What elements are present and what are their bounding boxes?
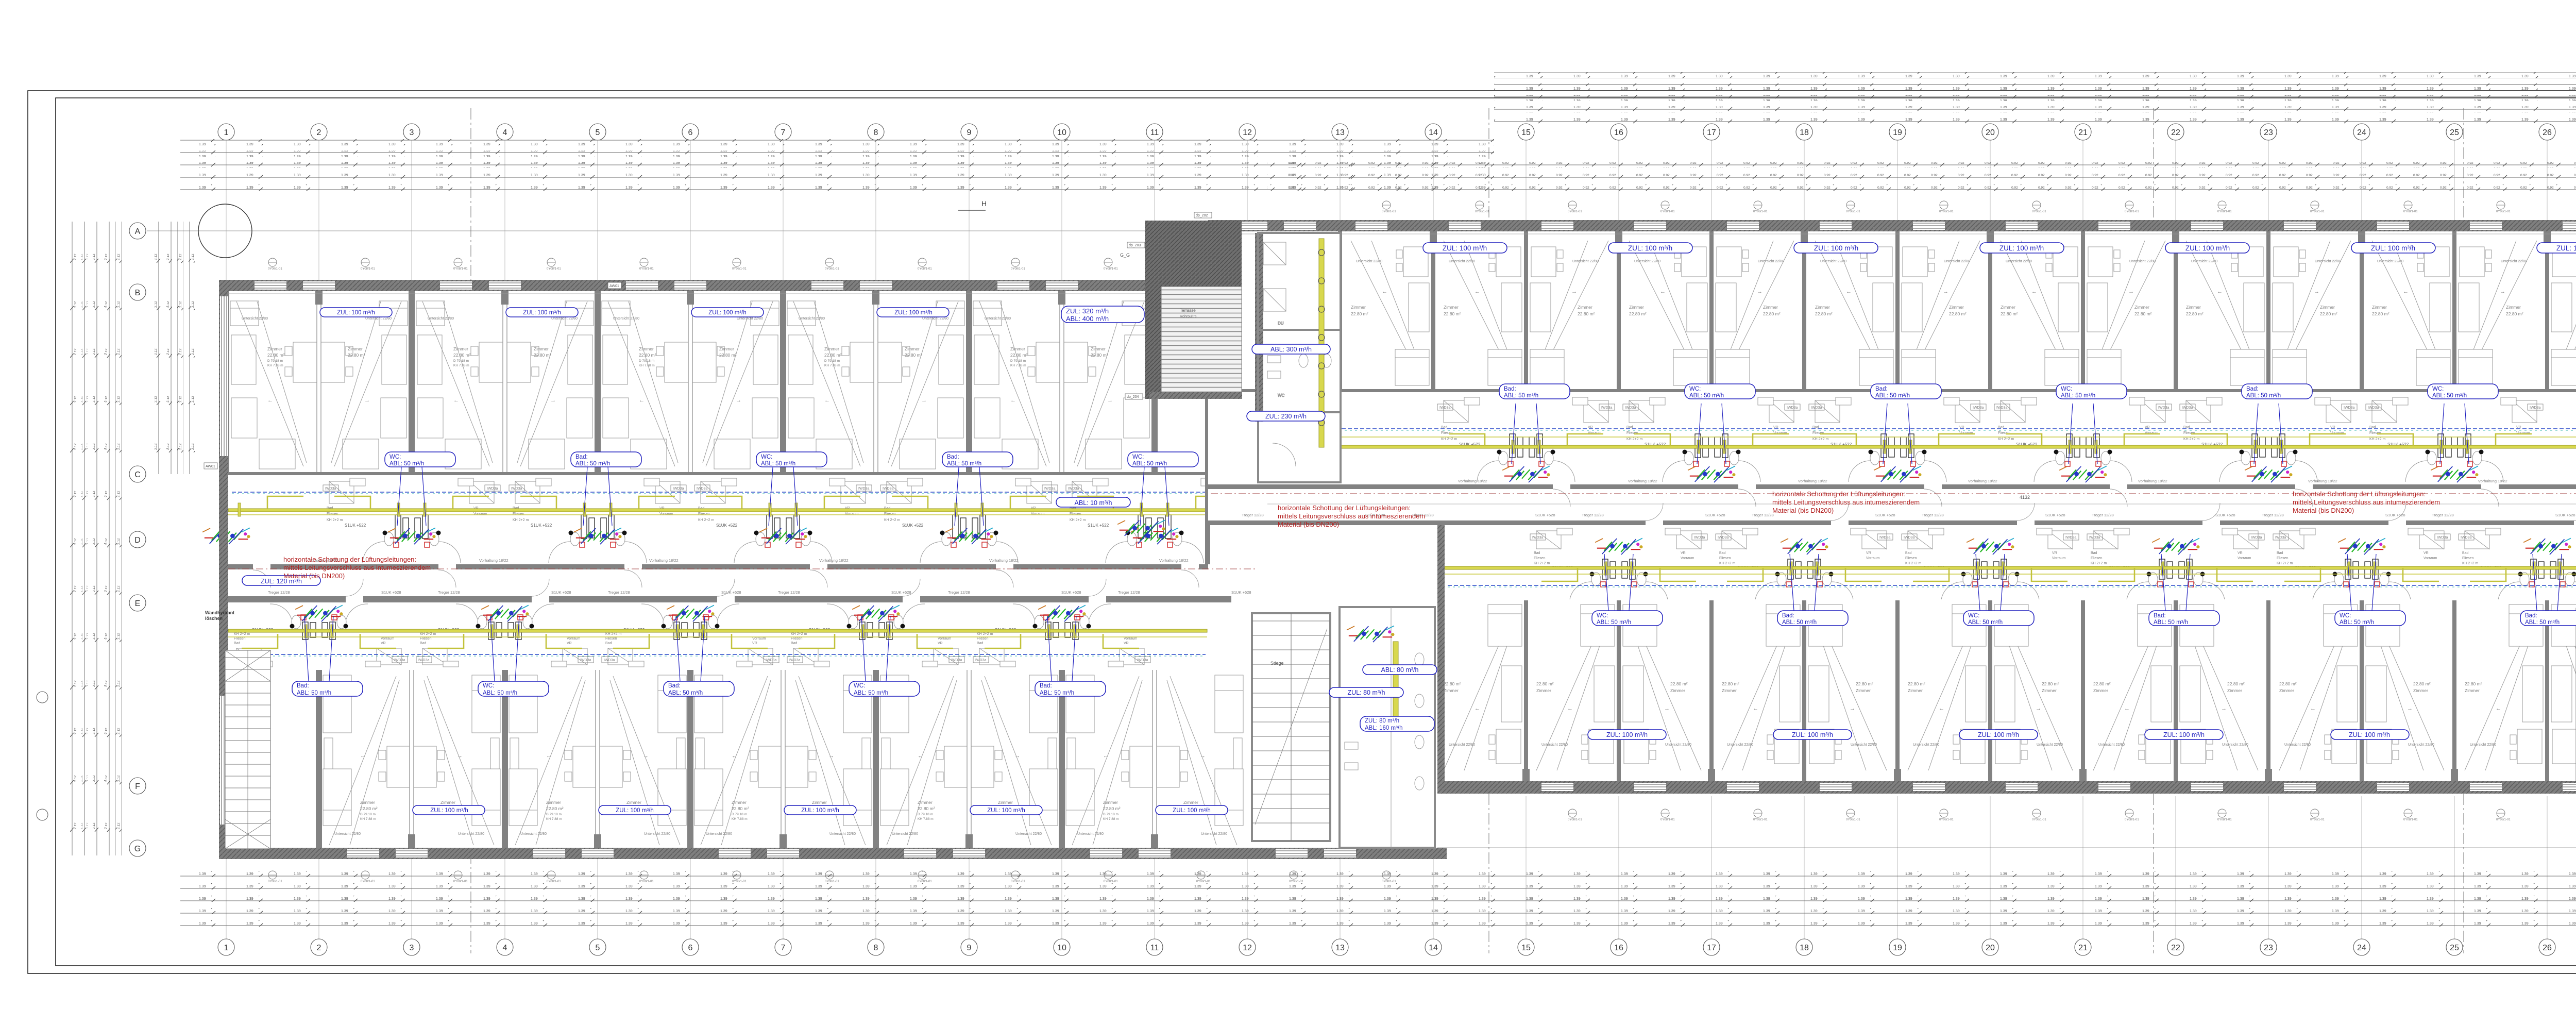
svg-text:Zimmer: Zimmer [440,800,455,805]
svg-text:VR: VR [1681,551,1686,555]
svg-text:Untersicht 22/80: Untersicht 22/80 [1665,743,1691,747]
svg-text:18: 18 [1800,128,1809,137]
svg-text:Untersicht 22/80: Untersicht 22/80 [1077,832,1104,836]
svg-text:S1UK +522: S1UK +522 [716,523,738,528]
svg-text:S1UK +528: S1UK +528 [2045,513,2065,517]
svg-text:KH 2+2 m: KH 2+2 m [1441,438,1457,441]
svg-text:Untersicht 22/80: Untersicht 22/80 [1356,260,1382,263]
svg-text:IWD3a: IWD3a [1601,406,1613,410]
svg-text:22.80 m²: 22.80 m² [719,352,737,358]
svg-text:Bad: Bad [791,642,798,645]
svg-text:VR: VR [2424,551,2429,555]
svg-text:ABL: 50 m³/h: ABL: 50 m³/h [1782,619,1817,626]
svg-text:→: → [1943,289,1948,295]
svg-text:24: 24 [2357,944,2366,952]
svg-text:ABL: 50 m³/h: ABL: 50 m³/h [483,690,517,696]
svg-text:KH 7.88 m: KH 7.88 m [732,817,748,821]
svg-text:Fliesen: Fliesen [2462,557,2474,560]
svg-text:Zimmer: Zimmer [2001,305,2015,310]
svg-text:Untersicht 22/80: Untersicht 22/80 [892,832,918,836]
svg-text:Fliesen: Fliesen [605,637,617,641]
svg-text:WC:: WC: [2061,386,2072,392]
svg-text:22.80 m²: 22.80 m² [1763,311,1781,316]
svg-text:ZUL: 100 m³/h: ZUL: 100 m³/h [616,808,654,814]
svg-text:22.80 m²: 22.80 m² [1949,311,1967,316]
svg-text:6: 6 [688,128,693,137]
svg-text:ZUL: 100 m³/h: ZUL: 100 m³/h [1792,731,1833,738]
svg-text:IWD3a: IWD3a [580,659,591,662]
svg-text:1: 1 [224,944,229,952]
svg-text:Bad: Bad [2462,551,2469,555]
svg-text:IWD3a: IWD3a [1625,406,1636,410]
svg-text:S1UK +522: S1UK +522 [345,523,366,528]
svg-text:S1UK +528: S1UK +528 [721,590,741,595]
svg-text:S1UK +528: S1UK +528 [381,590,401,595]
svg-text:Untersicht 22/80: Untersicht 22/80 [458,832,484,836]
svg-text:4: 4 [503,128,507,137]
svg-text:KH 2+2 m: KH 2+2 m [2369,438,2385,441]
svg-text:Zimmer: Zimmer [626,800,641,805]
svg-text:E: E [135,599,141,608]
svg-text:D 79.18 m: D 79.18 m [824,359,840,363]
svg-text:Untersicht 22/80: Untersicht 22/80 [1449,743,1475,747]
svg-text:Fliesen: Fliesen [791,637,803,641]
svg-text:ABL: 80 m³/h: ABL: 80 m³/h [1381,666,1419,674]
svg-text:←: ← [1846,289,1852,295]
svg-text:S1UK +522: S1UK +522 [902,523,924,528]
svg-text:Vorhaltung 18/22: Vorhaltung 18/22 [2138,479,2167,483]
svg-text:←: ← [360,753,366,759]
svg-text:Untersicht 22/80: Untersicht 22/80 [1913,743,1939,747]
svg-text:Treger 12/28: Treger 12/28 [1922,513,1944,517]
svg-text:Treger 12/28: Treger 12/28 [1242,513,1264,517]
svg-text:Treger 12/28: Treger 12/28 [2092,513,2114,517]
svg-text:Bad: Bad [234,642,241,645]
svg-text:23: 23 [2264,128,2273,137]
svg-text:Zimmer: Zimmer [1183,800,1198,805]
svg-text:→: → [921,397,927,404]
svg-text:KH 7.88 m: KH 7.88 m [1010,364,1026,367]
svg-text:→: → [1107,397,1113,404]
svg-text:5: 5 [596,128,600,137]
svg-text:22.80 m²: 22.80 m² [1722,681,1739,686]
svg-text:dp_202: dp_202 [1196,214,1208,217]
svg-text:22.80 m²: 22.80 m² [2001,311,2018,316]
svg-text:IWD3a: IWD3a [2065,536,2077,540]
svg-text:ZUL: 100 m³/h: ZUL: 100 m³/h [1173,808,1211,814]
svg-text:→: → [1664,705,1670,712]
svg-text:horizontale Schottung der Lüft: horizontale Schottung der Lüftungsleitun… [1278,504,1411,512]
svg-text:22.80 m²: 22.80 m² [2506,311,2523,316]
svg-text:9: 9 [967,944,972,952]
svg-text:Zimmer: Zimmer [2279,688,2294,693]
svg-text:D 79.18 m: D 79.18 m [918,813,933,816]
svg-text:IWD3a: IWD3a [2182,406,2193,410]
svg-text:Zimmer: Zimmer [534,346,549,351]
svg-text:D: D [134,536,141,545]
svg-text:Untersicht 22/80: Untersicht 22/80 [613,317,639,321]
svg-text:Untersicht 22/80: Untersicht 22/80 [1944,260,1970,263]
svg-text:Zimmer: Zimmer [2227,688,2242,693]
svg-text:KH 2+2 m: KH 2+2 m [977,632,993,636]
svg-text:Untersicht 22/80: Untersicht 22/80 [922,317,948,321]
svg-text:KH 2+2 m: KH 2+2 m [1812,438,1828,441]
svg-text:C: C [134,471,141,479]
svg-text:22.80 m²: 22.80 m² [2227,681,2245,686]
svg-text:H: H [981,199,987,208]
svg-text:Zimmer: Zimmer [360,800,375,805]
svg-text:horizontale Schottung der Lüft: horizontale Schottung der Lüftungsleitun… [283,556,416,563]
svg-text:Zimmer: Zimmer [2372,305,2387,310]
svg-text:→: → [457,753,463,759]
svg-text:horizontale Schottung der Lüft: horizontale Schottung der Lüftungsleitun… [2293,490,2426,498]
svg-text:Zimmer: Zimmer [267,346,282,351]
svg-text:Material (bis DN200): Material (bis DN200) [1278,520,1339,528]
svg-text:26: 26 [2543,944,2552,952]
svg-text:6: 6 [688,944,693,952]
svg-text:Untersicht 22/80: Untersicht 22/80 [2470,743,2496,747]
svg-text:S1UK +528: S1UK +528 [2555,513,2575,517]
svg-text:KH 2+2 m: KH 2+2 m [1998,438,2014,441]
svg-text:Untersicht 22/80: Untersicht 22/80 [428,317,454,321]
svg-text:IWD3a: IWD3a [2530,406,2541,410]
svg-text:←: ← [546,753,552,759]
svg-text:Vorraum: Vorraum [1866,557,1880,560]
svg-text:Untersicht 22/80: Untersicht 22/80 [1449,260,1475,263]
svg-text:18: 18 [1800,944,1809,952]
svg-text:S1UK +528: S1UK +528 [2215,513,2235,517]
svg-text:→: → [2314,289,2319,295]
svg-text:Zimmer: Zimmer [2320,305,2335,310]
svg-text:IWD3a: IWD3a [2089,536,2100,540]
svg-text:25: 25 [2450,944,2459,952]
svg-text:Untersicht 22/80: Untersicht 22/80 [2501,260,2527,263]
svg-text:S1UK +522: S1UK +522 [531,523,552,528]
svg-text:22.80 m²: 22.80 m² [1351,311,1368,316]
svg-text:ZUL: 100 m³/h: ZUL: 100 m³/h [894,310,933,316]
svg-text:Bad:: Bad: [1504,386,1516,392]
svg-text:KH 7.88 m: KH 7.88 m [1103,817,1119,821]
svg-text:ZUL: 100 m³/h: ZUL: 100 m³/h [430,808,468,814]
svg-text:Untersicht 22/80: Untersicht 22/80 [1820,260,1846,263]
svg-text:S1UK +528: S1UK +528 [551,590,571,595]
svg-text:←: ← [639,397,645,404]
svg-text:←: ← [732,753,737,759]
svg-text:VR: VR [938,642,943,645]
svg-text:ABL: 50 m³/h: ABL: 50 m³/h [297,690,331,696]
svg-text:Fliesen: Fliesen [513,512,524,516]
svg-text:ABL: 50 m³/h: ABL: 50 m³/h [854,690,888,696]
svg-text:24: 24 [2357,128,2366,137]
svg-text:S1UK +528: S1UK +528 [1535,513,1555,517]
svg-text:←: ← [824,397,830,404]
svg-text:Fliesen: Fliesen [420,637,432,641]
svg-text:→: → [1850,705,1855,712]
svg-text:ABL: 50 m³/h: ABL: 50 m³/h [1040,690,1074,696]
svg-text:KH 7.88 m: KH 7.88 m [918,817,934,821]
svg-text:ZUL: 80 m³/h: ZUL: 80 m³/h [1365,718,1399,724]
svg-text:Vorhaltung 18/22: Vorhaltung 18/22 [479,558,509,563]
svg-text:22.80 m²: 22.80 m² [2372,311,2389,316]
svg-text:IWD3a: IWD3a [1787,406,1798,410]
svg-text:Untersicht 22/80: Untersicht 22/80 [1015,832,1042,836]
svg-text:G: G [134,845,141,853]
svg-text:S1UK +528: S1UK +528 [1231,590,1251,595]
svg-text:9: 9 [967,128,972,137]
svg-text:Untersicht 22/80: Untersicht 22/80 [2222,743,2248,747]
svg-text:Vorhaltung 18/22: Vorhaltung 18/22 [2308,479,2337,483]
svg-text:22.80 m²: 22.80 m² [267,352,285,358]
svg-text:Vorhaltung 18/22: Vorhaltung 18/22 [1628,479,1657,483]
svg-text:22.80 m²: 22.80 m² [1444,681,1461,686]
svg-text:ABL: 50 m³/h: ABL: 50 m³/h [947,461,981,467]
svg-text:mittels Leitungsverschluss aus: mittels Leitungsverschluss aus intumeszi… [2293,498,2440,506]
svg-text:IWD3a: IWD3a [604,659,615,662]
svg-text:IWD3a: IWD3a [2437,536,2448,540]
svg-text:KH 2+2 m: KH 2+2 m [698,518,714,522]
svg-text:KH 7.88 m: KH 7.88 m [824,364,840,367]
svg-text:F: F [135,782,140,791]
svg-text:KH 7.88 m: KH 7.88 m [360,817,376,821]
svg-text:Untersicht 22/80: Untersicht 22/80 [706,832,732,836]
svg-text:22.80 m²: 22.80 m² [1815,311,1833,316]
svg-text:21: 21 [2078,128,2088,137]
svg-text:11: 11 [1150,128,1159,137]
svg-text:←: ← [1939,705,1944,712]
svg-text:IWD3a: IWD3a [1137,659,1148,662]
svg-text:Bad: Bad [1905,551,1912,555]
svg-text:VR: VR [2052,551,2057,555]
svg-text:IWD3a: IWD3a [858,487,870,491]
svg-text:KH 2+2 m: KH 2+2 m [2183,438,2199,441]
svg-text:Untersicht 22/80: Untersicht 22/80 [334,832,361,836]
svg-text:D 79.18 m: D 79.18 m [1010,359,1026,363]
svg-text:KH 7.88 m: KH 7.88 m [453,364,469,367]
svg-text:22.80 m²: 22.80 m² [2093,681,2111,686]
svg-text:22.80 m²: 22.80 m² [2279,681,2297,686]
svg-text:WC:: WC: [483,683,494,689]
svg-text:12: 12 [1243,944,1252,952]
svg-text:Fliesen: Fliesen [977,637,989,641]
svg-text:IWD3a: IWD3a [697,487,708,491]
svg-text:Untersicht 22/80: Untersicht 22/80 [1634,260,1660,263]
svg-text:Untersicht 22/80: Untersicht 22/80 [2037,743,2063,747]
svg-text:22.80 m²: 22.80 m² [2186,311,2204,316]
svg-text:KH 2+2 m: KH 2+2 m [605,632,621,636]
svg-text:ZUL: 100 m³/h: ZUL: 100 m³/h [1814,244,1858,252]
svg-text:Zimmer: Zimmer [1815,305,1830,310]
svg-text:KH 2+2 m: KH 2+2 m [791,632,807,636]
svg-text:Untersicht 22/80: Untersicht 22/80 [799,317,825,321]
svg-text:IWD3a: IWD3a [1973,406,1984,410]
svg-text:Zimmer: Zimmer [732,800,747,805]
svg-text:16: 16 [1614,128,1623,137]
svg-text:Treger 12/28: Treger 12/28 [1582,513,1604,517]
svg-text:22.80 m²: 22.80 m² [1091,352,1108,358]
svg-text:Zimmer: Zimmer [1103,800,1118,805]
svg-text:Bad:: Bad: [2154,613,2166,619]
svg-text:←: ← [1567,705,1573,712]
svg-text:Vorraum: Vorraum [1031,512,1045,516]
svg-text:←: ← [1660,289,1666,295]
svg-text:S1UK +528: S1UK +528 [891,590,911,595]
svg-text:13: 13 [1335,128,1345,137]
svg-text:ABL: 50 m³/h: ABL: 50 m³/h [1504,393,1538,399]
svg-text:Bad: Bad [977,642,984,645]
svg-text:IWD3a: IWD3a [2461,536,2472,540]
svg-text:→: → [1014,753,1020,759]
svg-text:ABL: 300 m³/h: ABL: 300 m³/h [1270,346,1312,353]
svg-text:IWD3a: IWD3a [1439,406,1451,410]
svg-text:ABL: 50 m³/h: ABL: 50 m³/h [1132,461,1167,467]
svg-text:Untersicht 22/80: Untersicht 22/80 [1758,260,1784,263]
svg-text:Vorhaltung 18/22: Vorhaltung 18/22 [1968,479,1997,483]
svg-text:mittels Leitungsverschluss aus: mittels Leitungsverschluss aus intumeszi… [1772,498,1920,506]
svg-text:Untersicht 22/80: Untersicht 22/80 [1541,743,1568,747]
svg-text:AW01: AW01 [206,465,215,468]
svg-text:Untersicht 22/80: Untersicht 22/80 [2191,260,2217,263]
svg-text:Bad: Bad [605,642,612,645]
svg-text:ABL: 50 m³/h: ABL: 50 m³/h [2432,393,2467,399]
svg-text:ABL: 50 m³/h: ABL: 50 m³/h [1689,393,1724,399]
svg-text:WC:: WC: [1689,386,1701,392]
svg-text:22.80 m²: 22.80 m² [348,352,365,358]
svg-text:Fliesen: Fliesen [1070,512,1081,516]
svg-text:→: → [2221,705,2227,712]
svg-text:→: → [828,753,834,759]
svg-text:IWD3a: IWD3a [1068,487,1079,491]
svg-text:Zimmer: Zimmer [546,800,561,805]
svg-text:ABL: 10 m³/h: ABL: 10 m³/h [1075,499,1112,507]
svg-text:B: B [135,289,141,297]
svg-text:22.80 m²: 22.80 m² [2320,311,2337,316]
svg-text:ABL: 50 m³/h: ABL: 50 m³/h [1968,619,2003,626]
svg-text:horizontale Schottung der Lüft: horizontale Schottung der Lüftungsleitun… [1772,490,1905,498]
svg-text:Vorhaltung 18/22: Vorhaltung 18/22 [649,558,679,563]
svg-text:Fliesen: Fliesen [234,637,246,641]
svg-text:←: ← [2496,705,2501,712]
svg-text:ABL: 50 m³/h: ABL: 50 m³/h [1597,619,1631,626]
svg-text:ABL: 50 m³/h: ABL: 50 m³/h [2525,619,2560,626]
svg-text:←: ← [1475,705,1480,712]
svg-text:Treger 12/28: Treger 12/28 [948,590,970,595]
svg-text:D 79.18 m: D 79.18 m [360,813,376,816]
svg-text:22.80 m²: 22.80 m² [1908,681,1925,686]
svg-text:23: 23 [2264,944,2273,952]
svg-text:Fliesen: Fliesen [1719,557,1731,560]
svg-text:IWD3a: IWD3a [1811,406,1822,410]
svg-text:Zimmer: Zimmer [2042,688,2057,693]
svg-text:ABL: 50 m³/h: ABL: 50 m³/h [2340,619,2374,626]
svg-text:IWD3a: IWD3a [1044,487,1056,491]
svg-text:Untersicht 22/80: Untersicht 22/80 [2408,743,2434,747]
svg-text:Vorraum: Vorraum [1681,557,1694,560]
svg-text:→: → [1571,289,1577,295]
svg-text:Treger 12/28: Treger 12/28 [1752,513,1774,517]
svg-text:22.80 m²: 22.80 m² [1670,681,1688,686]
svg-text:12: 12 [1243,128,1252,137]
svg-text:→: → [2036,705,2041,712]
svg-text:WC:: WC: [2340,613,2351,619]
svg-text:14: 14 [1429,944,1438,952]
svg-text:Treger 12/28: Treger 12/28 [2432,513,2454,517]
svg-text:→: → [1757,289,1762,295]
svg-text:22.80 m²: 22.80 m² [639,352,656,358]
svg-text:Treger 12/28: Treger 12/28 [778,590,800,595]
svg-text:KH 2+2 m: KH 2+2 m [513,518,529,522]
svg-text:→: → [643,753,649,759]
svg-text:Bad: Bad [1534,551,1540,555]
svg-text:Bad: Bad [1719,551,1726,555]
svg-text:KH 2+2 m: KH 2+2 m [1070,518,1086,522]
svg-text:VR: VR [1124,642,1129,645]
svg-text:Zimmer: Zimmer [2465,688,2480,693]
svg-text:4132: 4132 [2020,495,2030,500]
svg-text:ZUL: 100 m³/h: ZUL: 100 m³/h [337,310,375,316]
svg-text:13: 13 [1335,944,1345,952]
svg-text:Untersicht 22/80: Untersicht 22/80 [365,317,392,321]
svg-text:ABL: 50 m³/h: ABL: 50 m³/h [2154,619,2188,626]
svg-text:WC:: WC: [761,454,772,460]
svg-text:ZUL: 100 m³/h: ZUL: 100 m³/h [2371,244,2415,252]
svg-text:Zimmer: Zimmer [998,800,1013,805]
svg-text:Zimmer: Zimmer [1722,688,1737,693]
svg-text:Untersicht 22/80: Untersicht 22/80 [985,317,1011,321]
svg-text:KH 2+2 m: KH 2+2 m [327,518,343,522]
svg-text:→: → [2407,705,2413,712]
svg-text:Vorraum: Vorraum [473,512,487,516]
svg-text:Untersicht 22/80: Untersicht 22/80 [737,317,763,321]
svg-text:ABL: 400 m³/h: ABL: 400 m³/h [1066,315,1109,323]
svg-text:Untersicht 22/80: Untersicht 22/80 [520,832,547,836]
svg-text:22.80 m²: 22.80 m² [1578,311,1595,316]
svg-text:22.80 m²: 22.80 m² [2042,681,2059,686]
svg-text:←: ← [267,397,273,404]
svg-text:←: ← [2031,289,2037,295]
svg-text:Terrasse: Terrasse [1180,308,1196,313]
svg-text:Vorhaltung 18/22: Vorhaltung 18/22 [1159,558,1189,563]
svg-text:Vorraum: Vorraum [1124,637,1138,641]
svg-text:IWD3a: IWD3a [1996,406,2008,410]
svg-text:Untersicht 22/80: Untersicht 22/80 [644,832,670,836]
svg-text:Zimmer: Zimmer [1856,688,1871,693]
svg-text:KH 2+2 m: KH 2+2 m [2277,562,2293,565]
svg-text:IWD3a: IWD3a [1532,536,1544,540]
svg-text:WC: WC [1278,393,1285,398]
svg-text:Untersicht 22/80: Untersicht 22/80 [2377,260,2403,263]
svg-text:22.80 m²: 22.80 m² [918,806,935,811]
svg-text:ZUL: 100 m³/h: ZUL: 100 m³/h [1443,244,1487,252]
svg-text:15: 15 [1521,128,1531,137]
svg-text:Vorraum: Vorraum [2424,557,2437,560]
svg-text:Bad:: Bad: [297,683,309,689]
svg-text:Vorhaltung 18/22: Vorhaltung 18/22 [2478,479,2507,483]
svg-text:5: 5 [596,944,600,952]
svg-text:Zimmer: Zimmer [905,346,920,351]
svg-text:Vorhaltung 18/22: Vorhaltung 18/22 [989,558,1019,563]
svg-text:Fliesen: Fliesen [2091,557,2103,560]
svg-text:←: ← [918,753,923,759]
svg-text:14: 14 [1429,128,1438,137]
svg-text:Zimmer: Zimmer [2413,688,2428,693]
svg-text:ABL: 50 m³/h: ABL: 50 m³/h [668,690,703,696]
svg-text:WC:: WC: [389,454,401,460]
svg-text:Fliesen: Fliesen [327,512,338,516]
svg-text:22.80 m²: 22.80 m² [1536,681,1554,686]
svg-text:19: 19 [1893,128,1902,137]
svg-text:20: 20 [1986,944,1995,952]
svg-text:WC:: WC: [2432,386,2444,392]
